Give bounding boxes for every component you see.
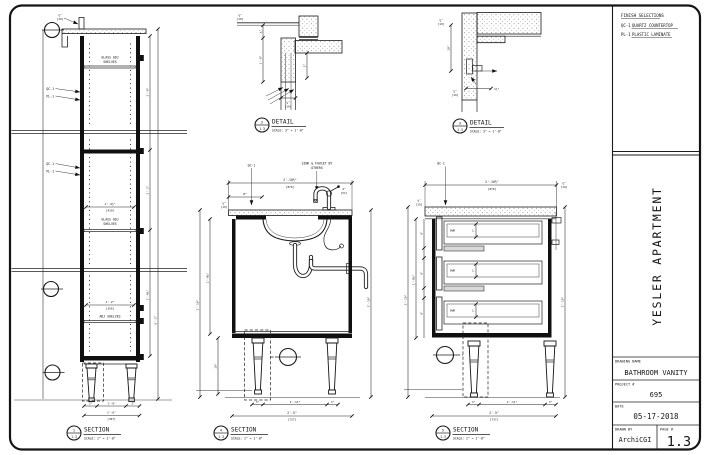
svg-text:1.3: 1.3 [218,435,224,439]
view-title-bubble: 4 1.3 SECTION SCALE: 1" = 1'-0" [214,426,268,441]
detail-2-counter-joint: ¾" [19] ¾" 1'-0" 2" ¾" [19] 2 1.3 DETAIL… [237,13,342,133]
view-title: SECTION [453,426,479,433]
date-label: DATE [615,405,624,409]
svg-text:[19]: [19] [561,185,568,189]
section-1-tall-cabinet: GLASS ADJ SHELVES GLASS ADJ SHELVES ADJ … [14,13,172,441]
leg [468,341,480,397]
leg [86,364,97,402]
datum-marker-icon [41,23,65,381]
svg-text:1.3: 1.3 [259,127,265,131]
material-callout: QC-1 [437,162,445,166]
svg-text:1'-9¾": 1'-9¾" [205,272,210,283]
svg-text:1'-9¾": 1'-9¾" [145,289,150,300]
svg-text:[19]: [19] [438,22,445,26]
svg-text:[457]: [457] [107,417,116,421]
view-title-bubble: 3 1.3 DETAIL SCALE: 3" = 1'-0" [453,119,504,134]
countertop [425,207,557,216]
svg-text:[19]: [19] [416,203,423,207]
svg-text:1.3: 1.3 [440,435,446,439]
view-title-bubble: 1 1.3 SECTION SCALE: 1" = 1'-0" [67,426,121,441]
finish-heading: FINISH SELECTIONS [621,13,664,18]
svg-text:1'-9¾": 1'-9¾" [411,274,416,285]
svg-text:2'-10": 2'-10" [366,296,370,307]
finish-label: PLASTIC LAMINATE [632,32,671,37]
svg-text:[737]: [737] [288,418,297,422]
svg-text:¾": ¾" [258,30,263,34]
leg [126,364,137,402]
svg-text:7": 7" [472,309,476,313]
finish-label: QUARTZ COUNTERTOP [632,23,674,28]
centerline-target-icon [271,349,302,366]
svg-text:[876]: [876] [286,185,295,189]
svg-text:10": 10" [213,363,217,369]
date-value: 05-17-2018 [633,412,679,421]
svg-text:1'-0": 1'-0" [107,401,116,405]
svg-text:DWR: DWR [450,229,455,233]
svg-text:[19]: [19] [221,205,228,209]
svg-text:5: 5 [442,429,444,433]
drawing-name-label: DRAWING NAME [615,360,641,364]
svg-text:QC-1: QC-1 [46,87,54,91]
svg-text:QC-1: QC-1 [46,162,54,166]
svg-text:DWR: DWR [450,309,455,313]
project-number-value: 695 [650,391,663,399]
svg-text:10": 10" [446,45,450,51]
shelf-note: SHELVES [103,222,117,226]
section-4-vanity-sink: QC-1 SINK & FAUCET BY OTHERS 2'-10½" [87… [195,162,371,441]
svg-text:4: 4 [220,429,222,433]
svg-text:2'-0": 2'-0" [145,87,149,96]
project-title: YESLER APARTMENT [650,186,664,326]
drawn-by-value: ArchiCGI [619,436,652,444]
leg [252,338,264,394]
leg [544,341,556,397]
material-callout: QC-1 [248,164,256,168]
svg-text:2'-10": 2'-10" [195,299,199,310]
svg-text:2'-10": 2'-10" [560,296,564,307]
section-5-vanity-drawers: QC-1 2'-10½" [876] ¾" [19] DWR 7" DWR 7"… [403,162,567,441]
centerline-target-icon [433,347,463,364]
svg-text:[356]: [356] [106,306,115,310]
page-number-label: PAGE # [660,428,674,432]
view-scale: SCALE: 3" = 1'-0" [470,130,502,134]
view-title-bubble: 5 1.3 SECTION SCALE: 1" = 1'-0" [436,426,490,441]
sink-note: OTHERS [311,166,323,170]
page-number-value: 1.3 [667,434,691,450]
svg-text:8": 8" [420,231,424,235]
svg-text:3": 3" [549,400,553,404]
cad-sheet-canvas: GLASS ADJ SHELVES GLASS ADJ SHELVES ADJ … [0,0,705,455]
drawn-by-label: DRAWN BY [615,428,633,432]
svg-text:8": 8" [420,271,424,275]
svg-text:8": 8" [243,192,247,196]
faucet [314,185,340,210]
dimensions: ¾" [19] ¾" 1'-0" 2" ¾" [19] [237,13,307,109]
svg-text:PL-1: PL-1 [46,170,54,174]
view-title: DETAIL [272,118,294,125]
view-title: SECTION [231,426,257,433]
drawer: DWR 7" [437,297,543,330]
svg-text:8": 8" [420,311,424,315]
sink-note: SINK & FAUCET BY [302,162,333,166]
drawing-sheet: GLASS ADJ SHELVES GLASS ADJ SHELVES ADJ … [0,0,705,455]
shelf-note: SHELVES [103,60,117,64]
svg-text:3": 3" [331,400,335,404]
svg-text:6'-2": 6'-2" [153,315,157,324]
detail-3-counter-edge: ¾" [19] 10" ¾" [19] 1½" 3 1.3 DETAIL SCA… [438,13,541,134]
svg-text:1: 1 [73,429,75,433]
countertop [229,210,353,216]
svg-text:PL-1: PL-1 [46,95,54,99]
svg-text:1'-11": 1'-11" [290,400,301,404]
svg-text:[419]: [419] [106,208,115,212]
view-scale: SCALE: 3" = 1'-0" [272,129,304,133]
drawer: DWR 7" [437,257,543,291]
svg-text:1'-6": 1'-6" [107,411,116,415]
svg-text:[876]: [876] [488,187,497,191]
finish-code: PL-1 [621,32,631,37]
cleat-blocks [140,55,144,360]
svg-text:1'-2": 1'-2" [105,300,114,304]
shelf-note: ADJ SHELVES [99,315,120,319]
svg-text:2": 2" [302,64,306,68]
svg-text:2'-5": 2'-5" [489,411,499,415]
svg-text:3": 3" [256,400,260,404]
svg-text:[51]: [51] [341,191,348,195]
p-trap-plumbing [290,216,367,287]
view-title: SECTION [84,426,110,433]
svg-text:1'-11": 1'-11" [507,400,518,404]
svg-text:3": 3" [89,401,93,405]
svg-text:2'-10½": 2'-10½" [485,180,499,184]
svg-text:1'-4½": 1'-4½" [105,202,116,206]
view-scale: SCALE: 1" = 1'-0" [231,437,263,441]
svg-text:2'-10": 2'-10" [403,294,407,305]
svg-text:3": 3" [131,401,135,405]
view-scale: SCALE: 1" = 1'-0" [84,437,116,441]
finish-selections: FINISH SELECTIONS QC-1 QUARTZ COUNTERTOP… [621,13,678,38]
wall-clip [552,212,561,250]
view-title-bubble: 2 1.3 DETAIL SCALE: 3" = 1'-0" [255,118,306,133]
title-block: FINISH SELECTIONS QC-1 QUARTZ COUNTERTOP… [613,6,701,451]
drawer: DWR 7" [437,217,543,251]
view-title: DETAIL [470,119,492,126]
svg-text:1.3: 1.3 [457,128,463,132]
svg-text:2'-2": 2'-2" [145,185,149,194]
leg [326,338,338,394]
svg-text:[19]: [19] [57,17,64,21]
svg-text:[19]: [19] [452,93,459,97]
svg-text:3": 3" [472,400,476,404]
project-number-label: PROJECT # [615,383,635,387]
svg-text:1½": 1½" [494,87,500,91]
view-scale: SCALE: 1" = 1'-0" [453,437,485,441]
sheet-border [10,6,700,450]
drawing-name-value: BATHROOM VANITY [624,369,688,377]
svg-text:7": 7" [472,269,476,273]
svg-text:[737]: [737] [490,418,499,422]
svg-text:[19]: [19] [285,105,292,109]
finish-code: QC-1 [621,23,631,28]
svg-text:7": 7" [472,229,476,233]
svg-text:2'-10½": 2'-10½" [283,178,297,182]
svg-text:[19]: [19] [237,17,244,21]
sink-bowl [263,219,327,241]
svg-text:3: 3 [459,122,461,126]
svg-text:DWR: DWR [450,269,455,273]
svg-text:2: 2 [261,121,263,125]
svg-text:1'-0": 1'-0" [258,55,262,64]
material-callout: QC-1 PL-1 QC-1 PL-1 [46,87,80,175]
svg-text:1.3: 1.3 [71,435,77,439]
svg-text:2'-5": 2'-5" [287,411,297,415]
